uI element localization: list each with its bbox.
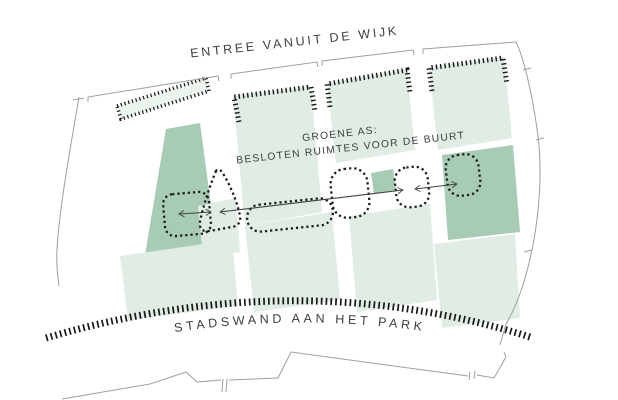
block-lower-1 (120, 240, 238, 320)
park-edge-break-ticks (222, 371, 475, 392)
park-edge-polyline-3 (477, 352, 506, 378)
block-entrance-strip (117, 78, 209, 119)
building-blocks (117, 57, 520, 328)
site-plan-diagram: ENTREE VANUIT DE WIJK GROENE AS: BESLOTE… (0, 0, 618, 400)
boundary-right-tick-3 (524, 250, 532, 252)
boundary-top-seg-2 (231, 62, 318, 79)
room-4 (329, 167, 371, 220)
park-edge-polyline-2 (229, 352, 468, 380)
boundary-right-tick-2 (536, 138, 544, 140)
block-dark-small (371, 169, 396, 194)
park-edge-polyline (62, 372, 221, 399)
block-dark-right (442, 145, 520, 240)
urban-plan-svg: ENTREE VANUIT DE WIJK GROENE AS: BESLOTE… (0, 0, 618, 400)
block-lower-4 (434, 234, 520, 328)
boundary-top-seg-4 (423, 42, 516, 54)
block-lower-3 (349, 204, 437, 312)
block-lower-2 (245, 212, 340, 312)
boundary-right-tick-1 (523, 68, 531, 70)
boundary-top-seg-3 (322, 50, 414, 66)
boundary-left (57, 97, 79, 286)
room-5 (393, 165, 430, 208)
label-stadswand: STADSWAND AAN HET PARK (173, 311, 426, 335)
